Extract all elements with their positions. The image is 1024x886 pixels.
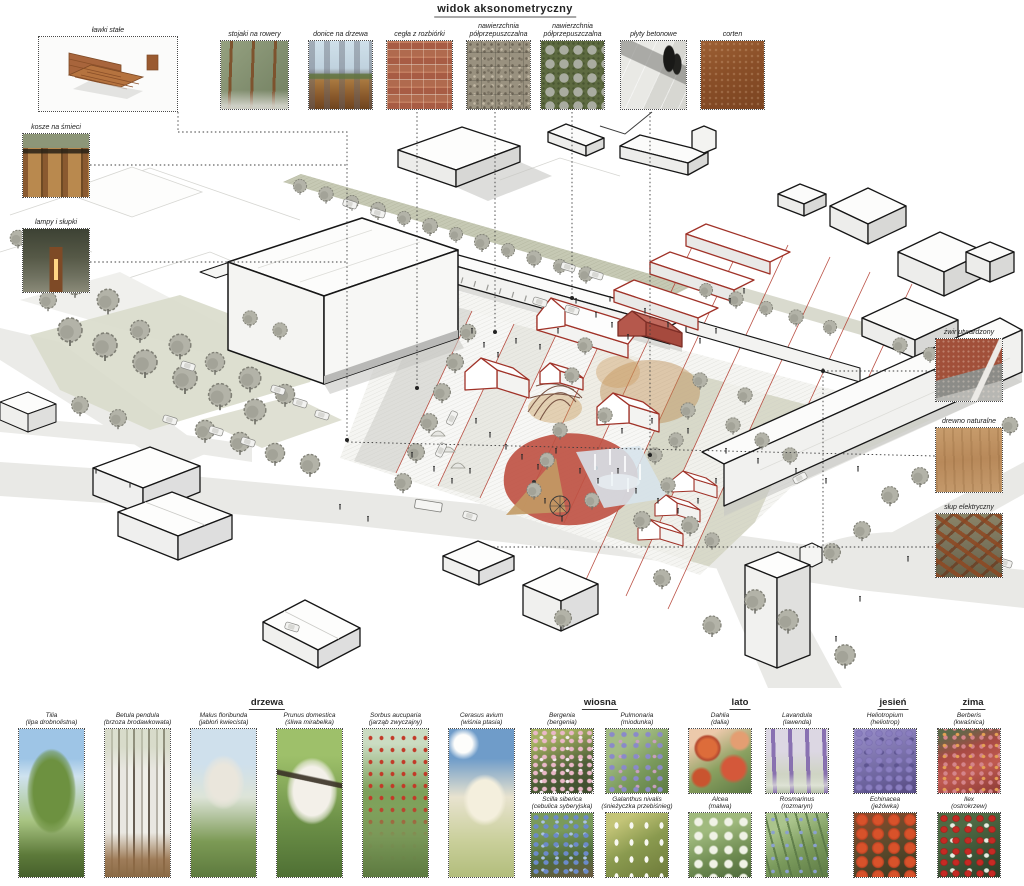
building-s-gable [263,600,360,668]
swatch-reclaimed-brick: cegła z rozbiórki [386,40,453,110]
tree-card-betula: Betula pendula(brzoza brodawkowata) [104,728,171,878]
swatch-label: ławki stałe [25,27,191,37]
building-ne-2 [778,184,826,216]
summer-heading: lato [730,697,751,710]
swatch-label: stojaki na rowery [207,31,302,41]
plant-card-bergenia: Bergenia(bergenia) [530,728,594,794]
building-ne-bar [620,126,716,175]
grass-grid-paving-photo [541,41,604,109]
plant-card-rosmarinus: Rosmarinus(rozmaryn) [765,812,829,878]
sorbus-photo [363,729,428,877]
echinacea-photo [854,813,916,877]
trash-bins-photo [23,134,89,197]
plant-label: Berberis(kwaśnica) [925,712,1013,729]
swatch-trash-bins: kosze na śmieci [22,133,90,198]
plant-card-berberis: Berberis(kwaśnica) [937,728,1001,794]
plant-card-dahlia: Dahlia(dalia) [688,728,752,794]
pulmonaria-photo [606,729,668,793]
swatch-fixed-benches: ławki stałe [38,36,178,112]
bollard-lamp-photo [23,229,89,292]
plant-card-alcea: Alcea(malwa) [688,812,752,878]
swatch-hardened-gravel: żwir utwardzony [935,338,1003,402]
ilex-photo [938,813,1000,877]
swatch-label: drewno naturalne [922,418,1016,428]
trees-heading: drzewa [249,697,285,710]
building-top-small [548,124,604,156]
plant-card-heliotropium: Heliotropium(heliotrop) [853,728,917,794]
plant-card-galanthus: Galanthus nivalis(śnieżyczka przebiśnieg… [605,812,669,878]
swatch-lamps-bollards: lampy i słupki [22,228,90,293]
tree-card-cerasus: Cerasus avium(wiśnia ptasia) [448,728,515,878]
malus-photo [191,729,256,877]
bike-racks-photo [221,41,288,109]
plant-label: Echinacea(jeżówka) [841,796,929,813]
tree-label: Tilia(lipa drobnolistna) [6,712,97,729]
bench-render [39,37,177,111]
swatch-electric-pole: słup elektryczny [935,513,1003,578]
plant-label: Galanthus nivalis(śnieżyczka przebiśnieg… [593,796,681,813]
swatch-corten: corten [700,40,765,110]
tree-label: Sorbus aucuparia(jarząb zwyczajny) [350,712,441,729]
presentation-board: widok aksonometryczny [0,0,1024,886]
plant-label: Rosmarinus(rozmaryn) [753,796,841,813]
hardened-gravel-photo [936,339,1002,401]
plant-label: Dahlia(dalia) [676,712,764,729]
winter-heading: zima [960,697,985,710]
plant-card-echinacea: Echinacea(jeżówka) [853,812,917,878]
prunus-photo [277,729,342,877]
cerasus-photo [449,729,514,877]
swatch-tree-planters: donice na drzewa [308,40,373,110]
page-title: widok aksonometryczny [434,3,576,18]
swatch-concrete-slabs: płyty betonowe [620,40,687,110]
plant-card-scilla: Scilla siberica(cebulica syberyjska) [530,812,594,878]
betula-photo [105,729,170,877]
bergenia-photo [531,729,593,793]
swatch-natural-wood: drewno naturalne [935,427,1003,493]
tree-label: Cerasus avium(wiśnia ptasia) [436,712,527,729]
building-right-1 [830,188,906,244]
tree-label: Prunus domestica(śliwa mirabelka) [264,712,355,729]
swatch-label: corten [687,31,778,41]
autumn-heading: jesień [878,697,909,710]
scilla-photo [531,813,593,877]
swatch-label: słup elektryczny [922,504,1016,514]
lavandula-photo [766,729,828,793]
berberis-photo [938,729,1000,793]
galanthus-photo [606,813,668,877]
concrete-slabs-photo [621,41,686,109]
natural-wood-photo [936,428,1002,492]
electric-pole-photo [936,514,1002,577]
swatch-semipermeable-paving-2: nawierzchnia półprzepuszczalna [540,40,605,110]
swatch-bike-racks: stojaki na rowery [220,40,289,110]
swatch-label: nawierzchnia półprzepuszczalna [527,23,618,41]
plant-label: Ilex(ostrokrzew) [925,796,1013,813]
tree-label: Malus floribunda(jabłoń kwiecista) [178,712,269,729]
alcea-photo [689,813,751,877]
tree-label: Betula pendula(brzoza brodawkowata) [92,712,183,729]
plant-label: Lavandula(lawenda) [753,712,841,729]
rosmarinus-photo [766,813,828,877]
swatch-semipermeable-paving-1: nawierzchnia półprzepuszczalna [466,40,531,110]
spring-heading: wiosna [582,697,618,710]
plant-card-lavandula: Lavandula(lawenda) [765,728,829,794]
corten-photo [701,41,764,109]
plant-label: Heliotropium(heliotrop) [841,712,929,729]
dahlia-photo [689,729,751,793]
semipermeable-paving-photo [467,41,530,109]
tilia-photo [19,729,84,877]
building-s-1 [443,541,514,585]
axonometric-view [0,105,1024,695]
plant-card-pulmonaria: Pulmonaria(miodunka) [605,728,669,794]
tree-card-tilia: Tilia(lipa drobnolistna) [18,728,85,878]
plant-card-ilex: Ilex(ostrokrzew) [937,812,1001,878]
plant-label: Alcea(malwa) [676,796,764,813]
plant-label: Pulmonaria(miodunka) [593,712,681,729]
swatch-label: lampy i słupki [9,219,103,229]
swatch-label: kosze na śmieci [9,124,103,134]
swatch-label: żwir utwardzony [922,329,1016,339]
tree-card-prunus: Prunus domestica(śliwa mirabelka) [276,728,343,878]
reclaimed-brick-photo [387,41,452,109]
tree-card-sorbus: Sorbus aucuparia(jarząb zwyczajny) [362,728,429,878]
tree-planters-photo [309,41,372,109]
heliotropium-photo [854,729,916,793]
tree-card-malus: Malus floribunda(jabłoń kwiecista) [190,728,257,878]
